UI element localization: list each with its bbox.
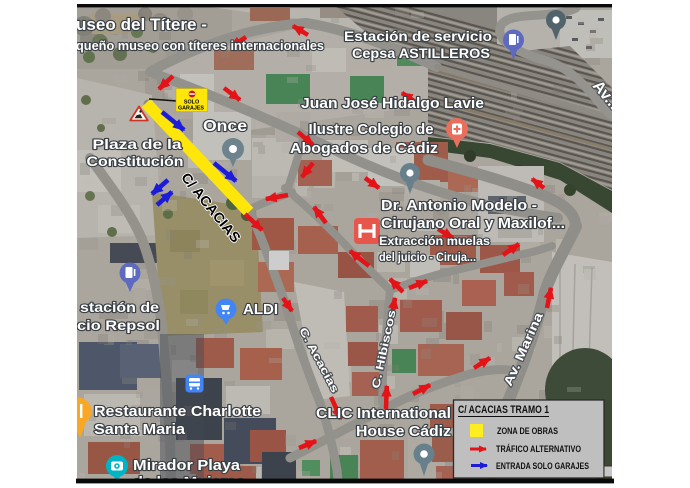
svg-text:Santa Maria: Santa Maria xyxy=(94,422,186,438)
svg-text:queño museo con títeres intern: queño museo con títeres internacionales xyxy=(76,38,324,53)
svg-text:C/ ACACIAS TRAMO 1: C/ ACACIAS TRAMO 1 xyxy=(458,404,549,416)
svg-text:Extracción muelas: Extracción muelas xyxy=(379,236,490,248)
svg-text:Mirador Playa: Mirador Playa xyxy=(133,458,241,474)
svg-text:House Cádiz: House Cádiz xyxy=(356,424,451,440)
svg-text:ENTRADA SOLO GARAJES: ENTRADA SOLO GARAJES xyxy=(496,461,589,472)
svg-text:Dr. Antonio Modelo -: Dr. Antonio Modelo - xyxy=(381,198,537,214)
svg-text:CLIC International: CLIC International xyxy=(316,406,451,422)
svg-text:ALDI: ALDI xyxy=(243,302,278,318)
svg-text:Once: Once xyxy=(203,118,247,135)
svg-text:useo del Títere -: useo del Títere - xyxy=(76,15,207,34)
svg-text:Constitución: Constitución xyxy=(87,153,184,169)
svg-text:Juan José Hidalgo Lavie: Juan José Hidalgo Lavie xyxy=(301,96,484,112)
svg-text:Restaurante Charlotte: Restaurante Charlotte xyxy=(94,404,261,420)
svg-text:GARAJES: GARAJES xyxy=(178,106,204,112)
svg-text:Ilustre Colegio de: Ilustre Colegio de xyxy=(309,122,434,138)
svg-text:cio Repsol: cio Repsol xyxy=(77,317,160,333)
svg-text:Cirujano Oral y Maxilof...: Cirujano Oral y Maxilof... xyxy=(381,216,565,232)
svg-text:TRÁFICO ALTERNATIVO: TRÁFICO ALTERNATIVO xyxy=(496,444,581,455)
svg-text:Abogados de Cádiz: Abogados de Cádiz xyxy=(290,141,438,157)
svg-text:stación de: stación de xyxy=(80,299,159,315)
svg-text:Cepsa ASTILLEROS: Cepsa ASTILLEROS xyxy=(352,45,490,61)
svg-text:del juicio - Ciruja...: del juicio - Ciruja... xyxy=(379,252,476,264)
svg-text:Plaza de la: Plaza de la xyxy=(93,136,182,152)
svg-text:ZONA DE OBRAS: ZONA DE OBRAS xyxy=(497,426,558,437)
svg-text:Estación de servicio: Estación de servicio xyxy=(344,28,492,44)
